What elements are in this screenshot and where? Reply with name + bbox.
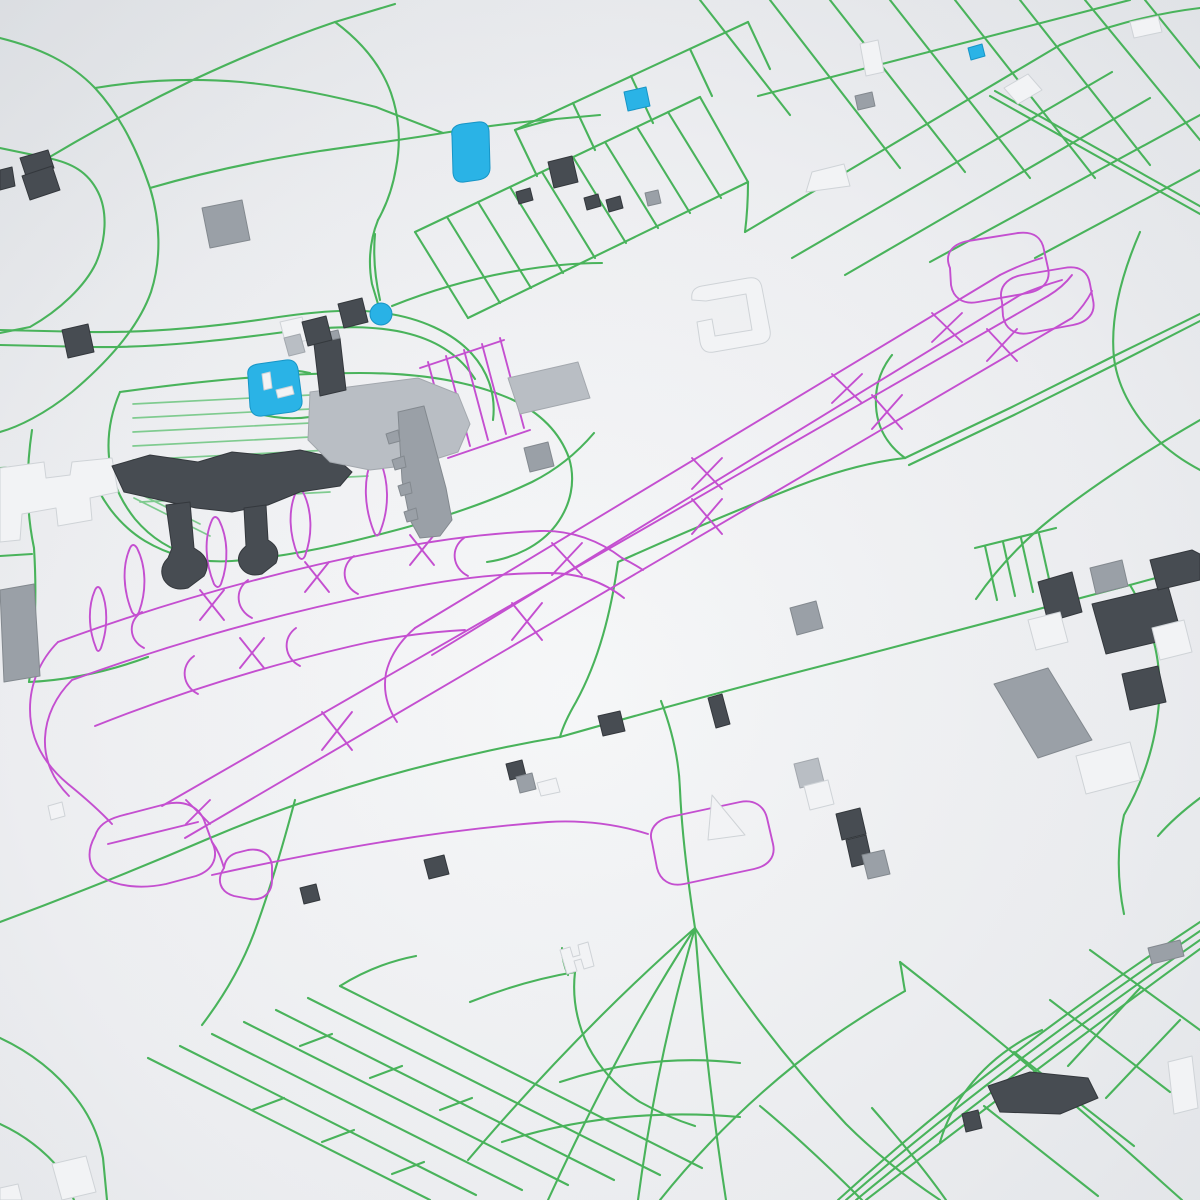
building [645,190,661,206]
building [300,884,320,904]
building [424,855,449,879]
building [524,442,554,472]
building [962,1110,982,1132]
water-body [452,122,490,182]
building [62,324,94,358]
water-body [248,360,302,416]
building [338,298,368,328]
building [202,200,250,248]
building [302,316,332,346]
building [516,773,536,793]
building [1168,1056,1198,1114]
building [262,372,272,390]
marker-layer [370,303,392,325]
building [836,808,866,840]
building [548,156,578,188]
location-marker[interactable] [370,303,392,325]
building [0,584,40,682]
building [0,167,15,190]
map-viewport[interactable] [0,0,1200,1200]
building [1152,620,1192,660]
building [314,338,346,396]
building [804,780,834,810]
map-canvas[interactable] [0,0,1200,1200]
building [598,711,625,736]
building [1122,666,1166,710]
